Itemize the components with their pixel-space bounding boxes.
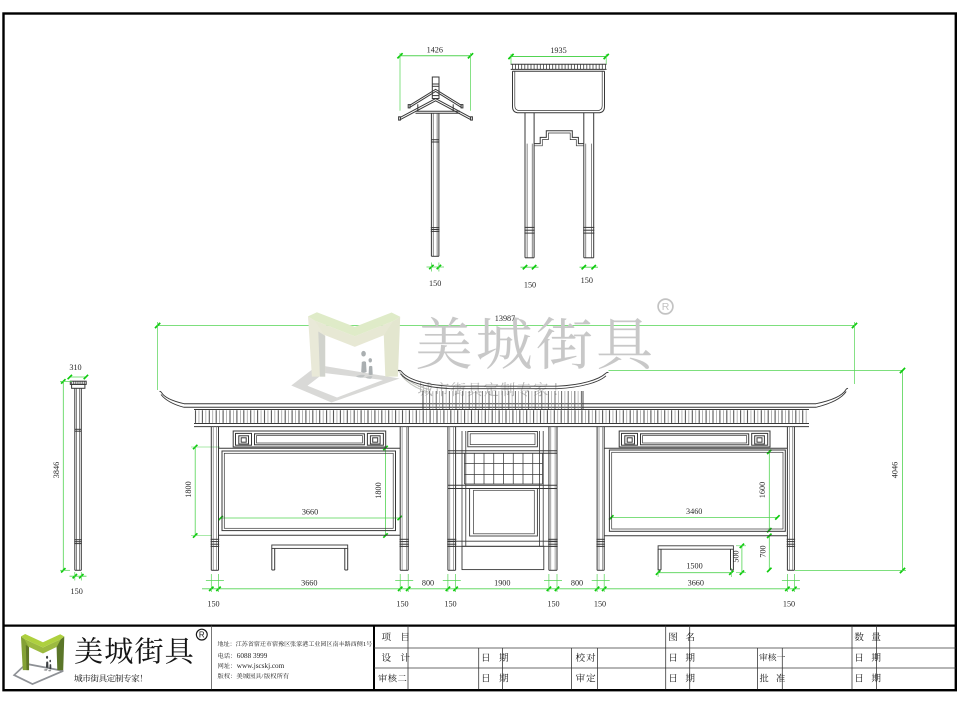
svg-text:150: 150 [396,600,408,609]
svg-text:3660: 3660 [301,578,317,587]
svg-text:150: 150 [524,281,536,290]
svg-text:700: 700 [758,545,767,557]
svg-text:150: 150 [547,600,559,609]
svg-text:150: 150 [783,600,795,609]
svg-text:1600: 1600 [758,482,767,498]
svg-text:1800: 1800 [374,482,383,498]
svg-text:310: 310 [69,363,81,372]
svg-text:1: 1 [363,641,366,648]
svg-text:3846: 3846 [52,462,61,478]
svg-text:150: 150 [207,600,219,609]
svg-text:R: R [199,631,205,640]
svg-text:150: 150 [429,279,441,288]
svg-text:1426: 1426 [427,46,443,55]
svg-text:1500: 1500 [686,561,702,570]
svg-text:3660: 3660 [302,508,318,517]
svg-text:3460: 3460 [686,507,702,516]
svg-text:6088 3999: 6088 3999 [237,652,268,660]
svg-text:1935: 1935 [550,46,566,55]
svg-text:800: 800 [571,578,583,587]
svg-text:www.jscskj.com: www.jscskj.com [237,662,285,670]
svg-text:13987: 13987 [495,314,515,323]
svg-text:4046: 4046 [891,462,900,478]
svg-text:/: / [262,673,264,680]
svg-text:500: 500 [731,550,740,562]
svg-text:800: 800 [422,578,434,587]
svg-text:150: 150 [594,600,606,609]
svg-text:150: 150 [581,276,593,285]
svg-text:R: R [662,301,670,313]
svg-text:1900: 1900 [494,578,510,587]
svg-text:150: 150 [444,600,456,609]
svg-text:150: 150 [71,587,83,596]
svg-text:3660: 3660 [688,578,704,587]
svg-text:1800: 1800 [184,481,193,497]
